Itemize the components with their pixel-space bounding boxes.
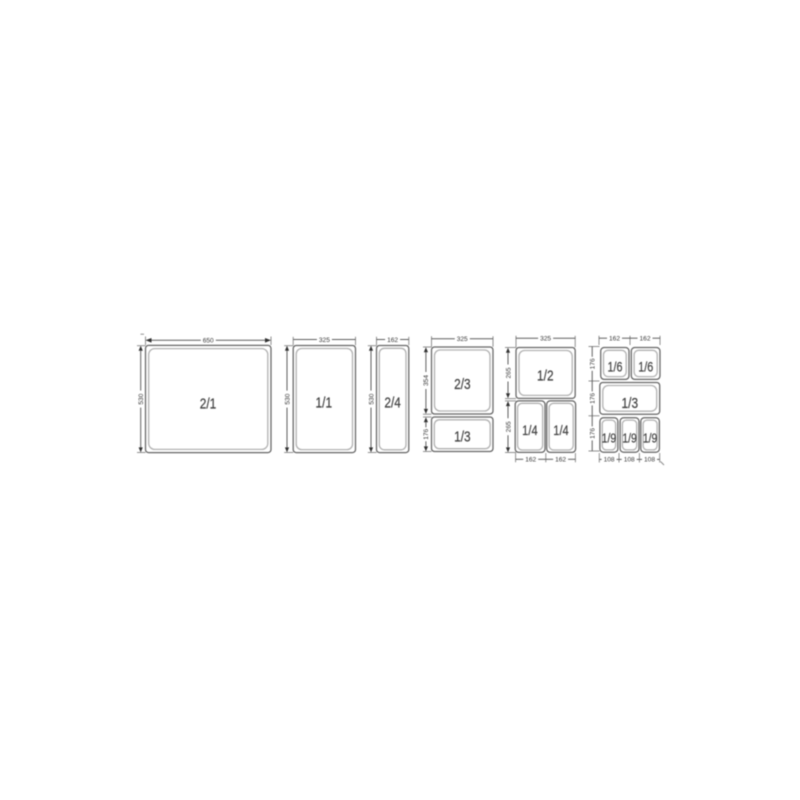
svg-text:1/4: 1/4 (553, 422, 569, 438)
svg-text:1/9: 1/9 (622, 431, 637, 446)
svg-text:1/4: 1/4 (522, 422, 538, 438)
svg-text:1/9: 1/9 (643, 431, 658, 446)
svg-text:108: 108 (624, 457, 635, 464)
svg-text:2/4: 2/4 (384, 396, 401, 412)
svg-text:1/3: 1/3 (454, 430, 471, 446)
svg-text:108: 108 (604, 457, 615, 464)
svg-text:354: 354 (423, 375, 430, 386)
svg-text:162: 162 (639, 336, 650, 343)
svg-text:325: 325 (540, 336, 551, 343)
svg-text:1/9: 1/9 (602, 431, 617, 446)
svg-text:650: 650 (203, 338, 214, 345)
svg-text:162: 162 (387, 337, 398, 344)
svg-text:176: 176 (590, 428, 597, 439)
svg-text:108: 108 (644, 457, 655, 464)
svg-text:162: 162 (609, 336, 620, 343)
svg-text:176: 176 (590, 358, 597, 369)
svg-text:530: 530 (284, 393, 291, 404)
svg-text:162: 162 (555, 457, 566, 464)
svg-text:176: 176 (590, 393, 597, 404)
svg-text:265: 265 (505, 367, 512, 378)
svg-text:1/1: 1/1 (316, 396, 333, 412)
svg-text:162: 162 (525, 457, 536, 464)
svg-text:2/3: 2/3 (454, 377, 471, 393)
svg-text:325: 325 (457, 336, 468, 343)
svg-text:265: 265 (505, 421, 512, 432)
svg-text:325: 325 (319, 337, 330, 344)
svg-text:530: 530 (368, 393, 375, 404)
svg-text:530: 530 (138, 393, 145, 404)
svg-text:176: 176 (423, 428, 430, 439)
svg-text:1/6: 1/6 (638, 360, 653, 375)
svg-text:1/2: 1/2 (537, 369, 554, 385)
svg-text:1/3: 1/3 (622, 396, 639, 412)
svg-text:1/6: 1/6 (608, 360, 623, 375)
svg-text:2/1: 2/1 (200, 397, 217, 413)
